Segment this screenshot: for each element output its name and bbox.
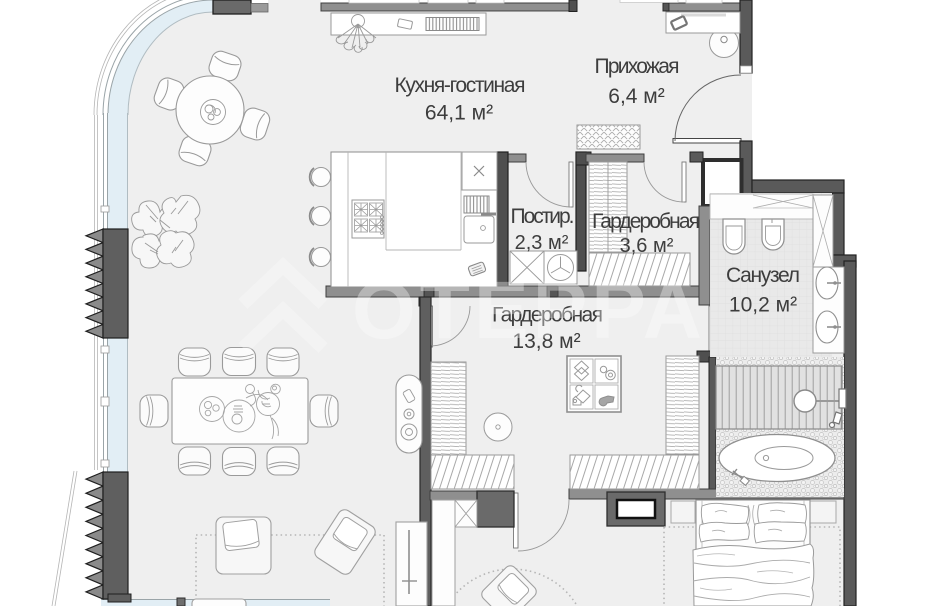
svg-text:2,3 м²: 2,3 м² xyxy=(515,232,569,254)
svg-text:Постир.: Постир. xyxy=(511,205,575,228)
svg-text:Прихожая: Прихожая xyxy=(595,55,680,78)
svg-text:ОТЕРРА: ОТЕРРА xyxy=(352,265,706,356)
svg-text:64,1 м²: 64,1 м² xyxy=(425,102,493,125)
svg-text:Санузел: Санузел xyxy=(726,264,800,287)
svg-text:Гардеробная: Гардеробная xyxy=(592,210,700,233)
svg-text:10,2 м²: 10,2 м² xyxy=(729,294,797,317)
svg-text:Кухня-гостиная: Кухня-гостиная xyxy=(395,74,526,97)
svg-text:6,4 м²: 6,4 м² xyxy=(608,85,664,108)
svg-text:3,6 м²: 3,6 м² xyxy=(620,235,674,257)
